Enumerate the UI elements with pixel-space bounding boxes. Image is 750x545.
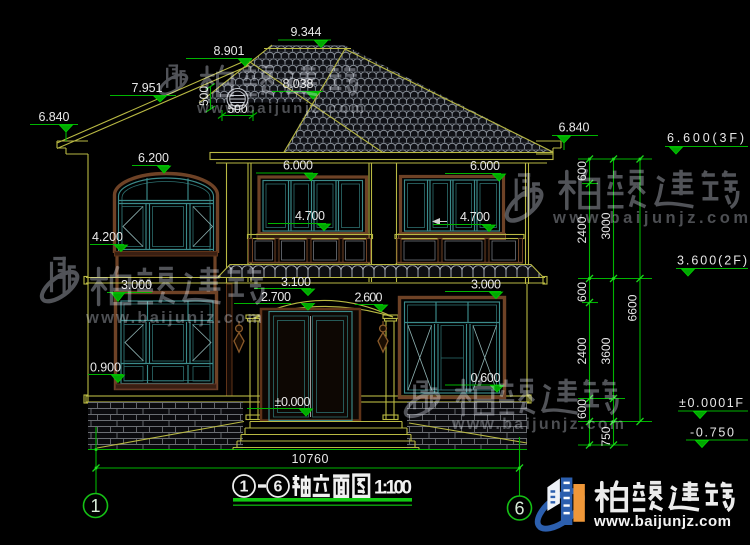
svg-text:8.901: 8.901 (214, 44, 245, 58)
svg-text:1: 1 (90, 496, 100, 516)
svg-text:600: 600 (575, 282, 589, 302)
svg-text:2400: 2400 (575, 337, 589, 364)
svg-text:6: 6 (514, 499, 524, 519)
svg-text:2.700: 2.700 (261, 290, 291, 304)
svg-text:3.600(2F): 3.600(2F) (677, 254, 747, 268)
svg-text:6600: 6600 (626, 294, 640, 321)
svg-text:3.100: 3.100 (281, 275, 311, 289)
svg-text:4.700: 4.700 (460, 210, 490, 224)
svg-text:-0.750: -0.750 (690, 426, 734, 440)
svg-text:0.600: 0.600 (471, 371, 501, 385)
svg-text:1:100: 1:100 (374, 478, 412, 499)
svg-text:2.600: 2.600 (355, 291, 383, 305)
svg-text:6.840: 6.840 (39, 110, 70, 124)
svg-text:3.000: 3.000 (471, 278, 501, 292)
svg-text:9.344: 9.344 (291, 25, 322, 39)
svg-text:4.700: 4.700 (295, 209, 325, 223)
svg-text:6: 6 (274, 479, 283, 496)
svg-text:6.000: 6.000 (283, 159, 313, 173)
svg-text:±0.000: ±0.000 (275, 395, 311, 409)
svg-text:7.951: 7.951 (132, 81, 163, 95)
svg-text:6.600(3F): 6.600(3F) (667, 131, 744, 145)
svg-text:4.200: 4.200 (92, 230, 123, 244)
svg-text:6.000: 6.000 (470, 159, 500, 173)
svg-text:3600: 3600 (599, 337, 613, 364)
svg-text:0.900: 0.900 (90, 361, 121, 375)
svg-text:6.840: 6.840 (559, 121, 590, 135)
svg-text:www.baijunjz.com: www.baijunjz.com (593, 513, 731, 530)
svg-text:±0.0001F: ±0.0001F (679, 396, 743, 410)
svg-text:6.200: 6.200 (138, 151, 169, 165)
svg-text:1: 1 (240, 479, 249, 496)
svg-text:10760: 10760 (292, 452, 329, 466)
